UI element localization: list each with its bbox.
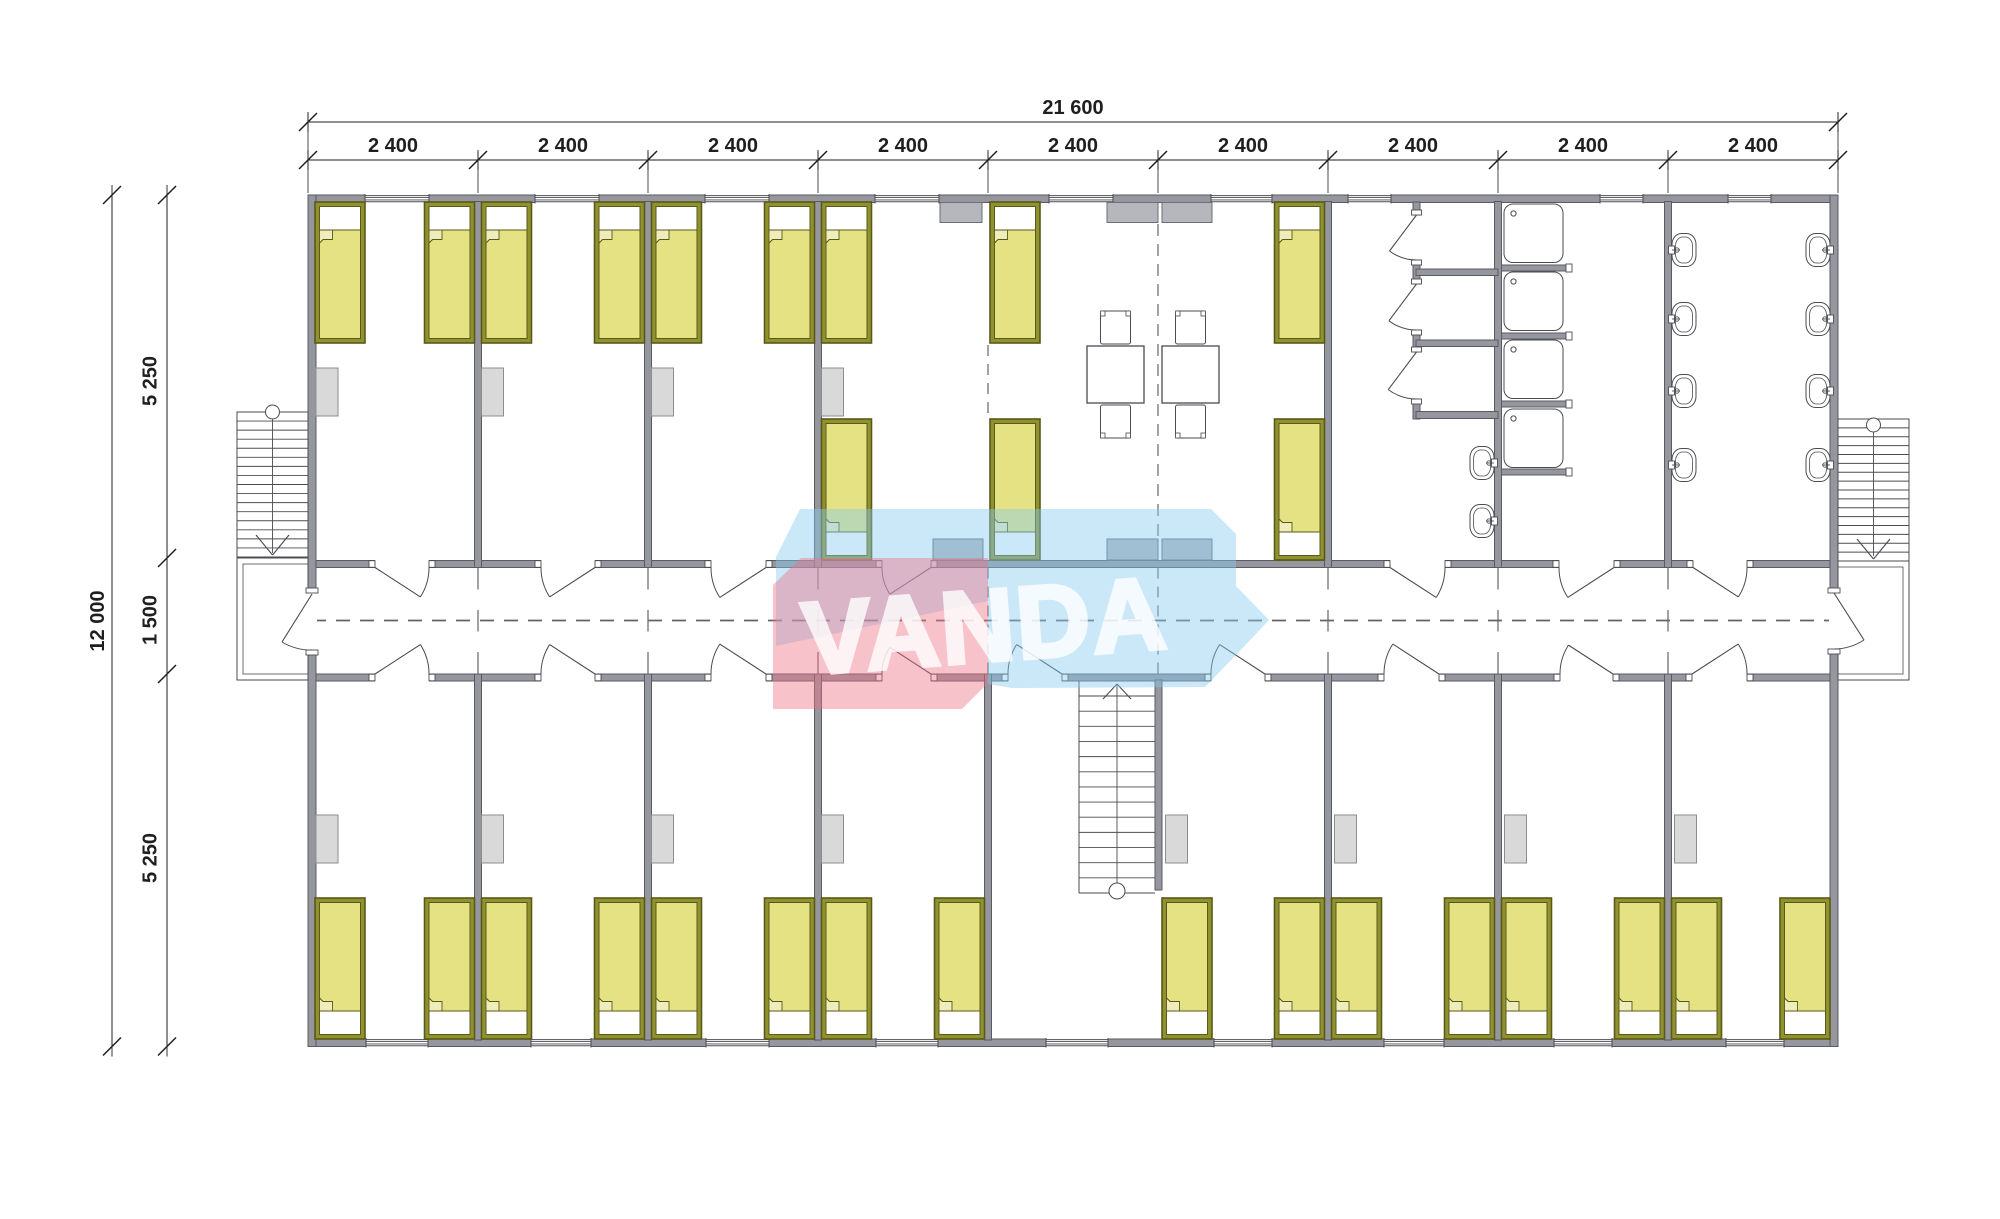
svg-text:1 500: 1 500 [140,595,162,645]
svg-text:2 400: 2 400 [1388,135,1438,157]
svg-text:12 000: 12 000 [87,590,109,651]
svg-text:2 400: 2 400 [1728,135,1778,157]
svg-text:2 400: 2 400 [538,135,588,157]
svg-text:2 400: 2 400 [878,135,928,157]
svg-text:21 600: 21 600 [1042,97,1103,119]
svg-text:2 400: 2 400 [1048,135,1098,157]
svg-text:2 400: 2 400 [368,135,418,157]
svg-text:2 400: 2 400 [1558,135,1608,157]
svg-text:5 250: 5 250 [140,833,162,883]
svg-text:2 400: 2 400 [1218,135,1268,157]
svg-text:2 400: 2 400 [708,135,758,157]
svg-text:5 250: 5 250 [140,356,162,406]
